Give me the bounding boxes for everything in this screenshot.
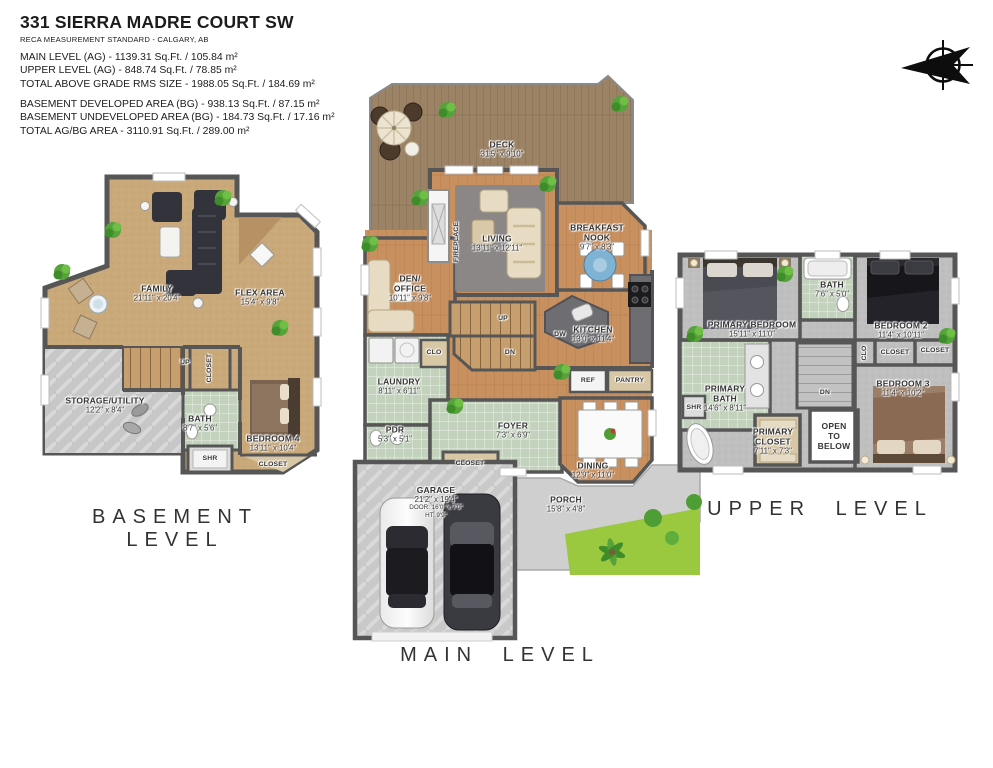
label-shr-upper: SHR [687,404,702,412]
primary-vanity [745,344,769,408]
room-label-family: FAMILY 21'11" x 20'4" [134,283,181,302]
room-label-bedroom3: BEDROOM 3 11'4" x 10'2" [876,378,929,397]
room-label-pdr: PDR 5'3" x 5'1" [378,424,412,443]
bedroom3-bed [861,386,955,464]
north-arrow-icon [898,34,982,98]
label-clo: CLO [427,349,442,357]
basement-stairs [123,347,183,390]
main-stairs [450,302,535,370]
label-closet-bedroom4: CLOSET [259,461,288,469]
label-clo-upper: CLO [861,346,869,361]
label-shr: SHR [203,455,218,463]
label-closet-a: CLOSET [881,349,910,357]
label-dn: DN [505,349,515,357]
label-pantry: PANTRY [616,377,644,385]
dining-table [578,402,642,467]
room-label-upper-bath: BATH 7'6" x 5'0" [815,279,849,298]
label-closet-foyer: CLOSET [456,460,485,468]
label-up: UP [180,359,190,367]
living-armchair [480,190,508,212]
room-label-primary-bedroom: PRIMARY BEDROOM 15'11" x 11'0" [708,319,796,338]
fireplace [428,190,449,262]
room-label-deck: DECK 31'5" x 9'10" [481,139,524,158]
caption-basement-level: BASEMENT LEVEL [40,506,310,552]
room-label-porch: PORCH 15'8" x 4'8" [547,494,585,513]
room-label-basement-bath: BATH 8'7" x 5'6" [183,413,217,432]
page-title: 331 SIERRA MADRE COURT SW [20,12,420,33]
label-dw: DW [554,331,566,339]
room-label-bedroom2: BEDROOM 2 11'4" x 10'11" [874,320,927,339]
floorplan-sheet: 331 SIERRA MADRE COURT SW RECA MEASUREME… [0,0,993,768]
caption-upper-level: UPPER LEVEL [675,498,965,521]
room-label-storage-utility: STORAGE/UTILITY 12'2" x 8'4" [65,395,144,414]
bedroom2-bed [867,258,939,324]
label-up: UP [498,315,508,323]
label-dn-upper: DN [820,389,830,397]
room-label-garage: GARAGE 21'2" x 19'4" DOOR: 16'0" x 7'0" … [409,485,462,519]
room-label-primary-bath: PRIMARY BATH 14'6" x 8'11" [704,383,746,412]
primary-bed [688,258,791,329]
main-plan: DECK 31'5" x 9'10" LIVING 13'11" x 12'11… [350,70,708,655]
label-open-to-below: OPEN TO BELOW [818,421,851,451]
label-ref: REF [581,377,595,385]
room-label-dining: DINING 12'9" x 11'0" [572,460,614,479]
label-closet-stairs: CLOSET [206,354,214,383]
coffee-table [160,227,180,257]
upper-plan: PRIMARY BEDROOM 15'11" x 11'0" BATH 7'6"… [675,248,965,476]
stove [628,282,651,307]
room-label-laundry: LAUNDRY 8'11" x 6'11" [378,376,421,395]
room-label-den-office: DEN/ OFFICE 10'11" x 9'8" [389,273,431,302]
upper-stairs [797,343,853,408]
bedroom4-bed [250,378,300,440]
measurement-standard: RECA MEASUREMENT STANDARD - CALGARY, AB [20,35,420,44]
room-label-living: LIVING 13'11" x 12'11" [472,233,522,252]
room-label-primary-closet: PRIMARY CLOSET 7'11" x 7'3" [753,426,793,455]
room-label-flex-area: FLEX AREA 15'4" x 9'8" [235,287,285,306]
room-label-kitchen: KITCHEN 13'0" x 11'4" [572,324,614,343]
room-label-breakfast-nook: BREAKFAST NOOK 9'7" x 8'3" [570,222,624,251]
area-line: MAIN LEVEL (AG) - 1139.31 Sq.Ft. / 105.8… [20,51,420,64]
label-closet-b: CLOSET [921,347,950,355]
label-fireplace: FIREPLACE [453,222,461,262]
basement-plan: FAMILY 21'11" x 20'4" FLEX AREA 15'4" x … [40,170,325,485]
room-label-bedroom4: BEDROOM 4 13'11" x 10'4" [246,433,299,452]
caption-main-level: MAIN LEVEL [340,644,660,667]
room-label-foyer: FOYER 7'3" x 6'9" [496,420,530,439]
